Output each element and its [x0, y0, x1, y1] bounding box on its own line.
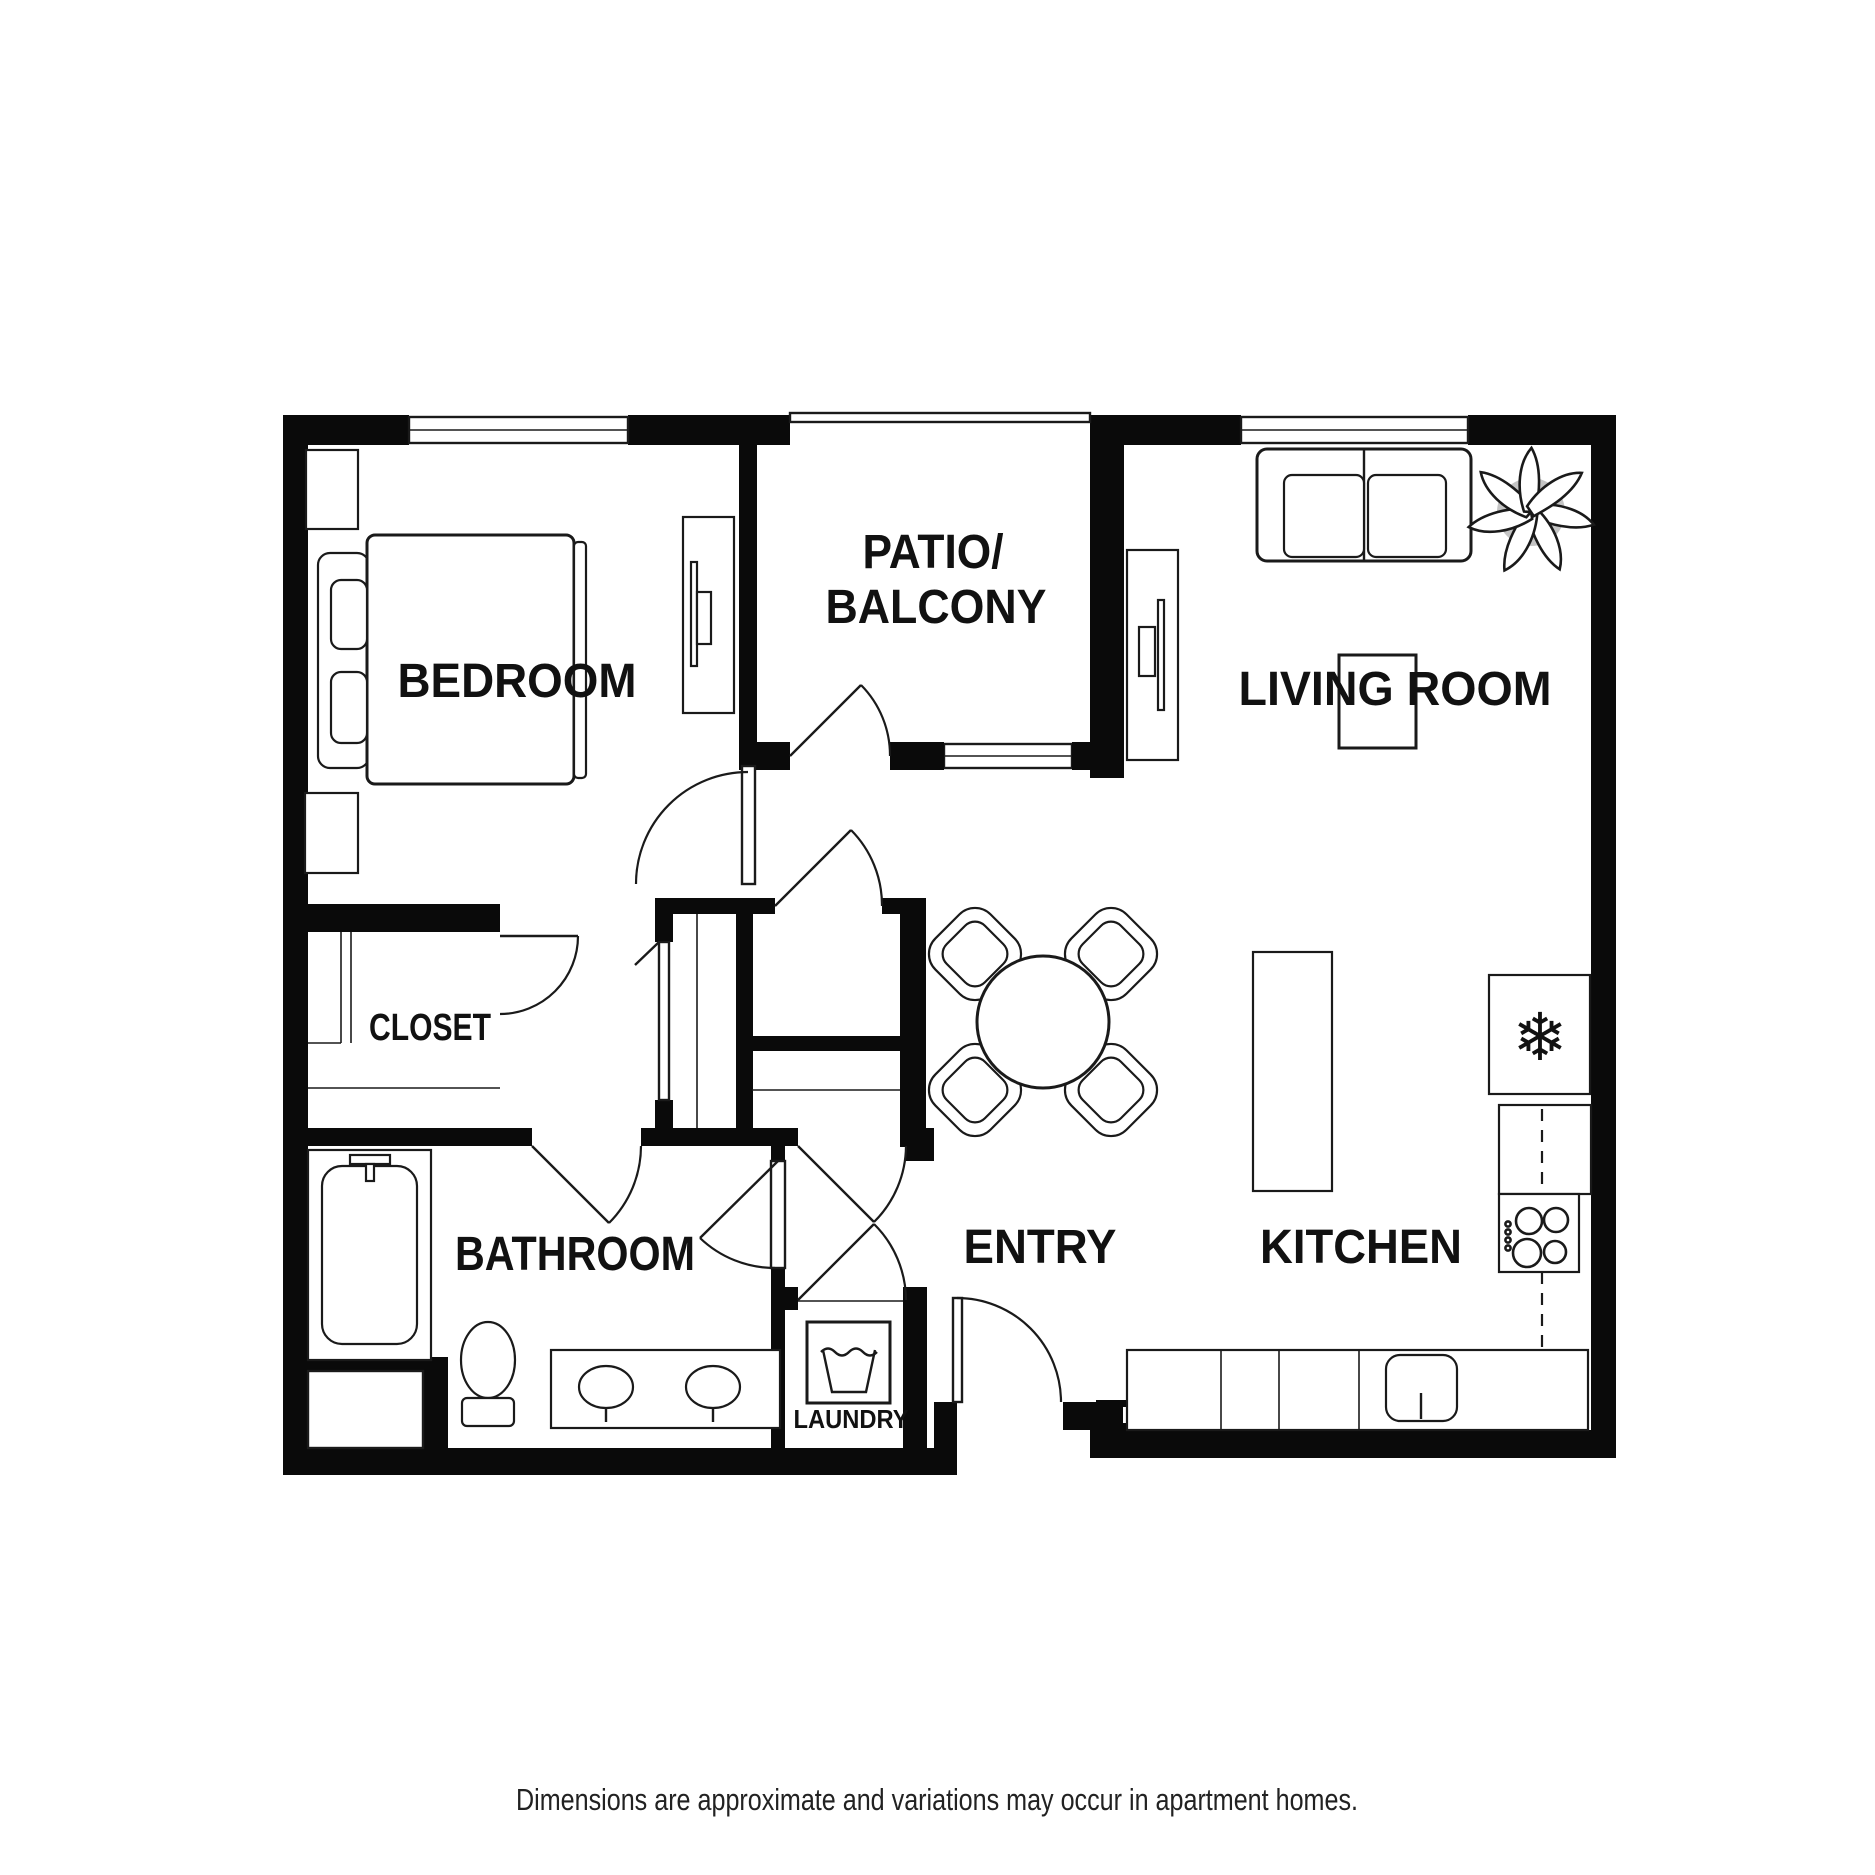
living-room-label: LIVING ROOM — [1239, 663, 1552, 716]
hall-bath-door-swing — [609, 1146, 641, 1223]
toilet-bowl — [461, 1322, 515, 1398]
sofa-cushion-left — [1284, 475, 1364, 557]
hall-bath-door-leaf — [532, 1146, 609, 1223]
plant-icon — [1467, 447, 1596, 575]
kitchen-island — [1253, 952, 1332, 1191]
bathroom-door-leaf — [700, 1161, 778, 1238]
laundry-door-leaf — [798, 1224, 874, 1300]
wall-top-bedroom-left — [283, 415, 409, 445]
wall-bottom-left-block — [283, 1448, 934, 1475]
floor-plan-page: ❄ B — [0, 0, 1875, 1875]
front-door-leaf — [953, 1298, 962, 1402]
laundry-fixtures — [807, 1322, 890, 1403]
closet-label: CLOSET — [369, 1007, 491, 1049]
bathroom-door-swing — [700, 1238, 775, 1268]
wall-storage-left — [736, 898, 753, 1143]
kitchen-counter-right — [1499, 1105, 1591, 1194]
wall-bath-top-b — [641, 1128, 798, 1146]
pillow-left — [331, 580, 367, 649]
nightstand-top — [306, 450, 358, 529]
wall-bottom-door-left-jamb — [934, 1402, 957, 1475]
fridge-snowflake-icon: ❄ — [1512, 999, 1567, 1076]
bedroom-door-leaf — [742, 766, 755, 884]
wall-patio-bottom-b — [890, 742, 944, 770]
dining-table — [977, 956, 1109, 1088]
wall-patio-bottom-c — [1072, 742, 1124, 770]
vestibule-door-leaf — [798, 1146, 874, 1222]
wall-storage-right — [900, 898, 926, 1147]
toilet-tank — [462, 1398, 514, 1426]
nightstand-bottom — [305, 793, 358, 873]
wall-left — [283, 415, 308, 1475]
wall-laundry-top-stub — [771, 1287, 798, 1310]
sofa-cushion-right — [1368, 475, 1446, 557]
laundry-door-swing — [874, 1224, 906, 1300]
vestibule-door-swing — [874, 1146, 906, 1222]
wall-top-bedroom-right — [628, 415, 790, 445]
kitchen-fixtures: ❄ — [1127, 952, 1591, 1430]
wall-patio-right — [1090, 440, 1124, 778]
hall-closet-door-leaf — [659, 942, 669, 1100]
bathroom-label: BATHROOM — [455, 1228, 695, 1281]
tub-faucet-stem — [366, 1164, 374, 1181]
wall-storage-middle — [752, 1036, 900, 1051]
pillow-right — [331, 672, 367, 743]
patio-label-line1: PATIO/ — [863, 526, 1004, 579]
living-tv-icon — [1158, 600, 1164, 710]
laundry-label: LAUNDRY — [794, 1404, 909, 1434]
bedroom-tv-mount-icon — [697, 592, 711, 644]
disclaimer-text: Dimensions are approximate and variation… — [516, 1782, 1358, 1817]
vanity-sink-left — [579, 1366, 633, 1408]
entry-label: ENTRY — [964, 1221, 1117, 1274]
bath-niche — [308, 1371, 423, 1448]
closet-door-swing — [500, 936, 578, 1014]
wall-right — [1591, 415, 1616, 1458]
bathroom-doorway — [771, 1161, 785, 1268]
hall-closet-door-tick — [635, 942, 659, 965]
dining-set — [920, 899, 1166, 1145]
floor-plan-drawing: ❄ B — [0, 0, 1875, 1875]
living-tv-mount-icon — [1139, 627, 1155, 676]
bathroom-fixtures — [308, 1150, 780, 1448]
storage-door-leaf — [775, 830, 851, 906]
kitchen-counter-bottom — [1127, 1350, 1588, 1430]
wall-entry-post — [906, 1128, 934, 1161]
wall-patio-left — [739, 440, 757, 764]
vanity-sink-right — [686, 1366, 740, 1408]
bedroom-door-swing — [636, 772, 748, 884]
wall-niche-right — [423, 1371, 448, 1449]
wall-bath-top-a — [283, 1128, 532, 1146]
wall-storage-top-b — [882, 898, 900, 914]
patio-label-line2: BALCONY — [826, 581, 1047, 634]
wall-storage-top-a — [753, 898, 775, 914]
patio-door-leaf — [790, 685, 861, 756]
wall-hall-closet-post-top — [655, 898, 673, 942]
patio-railing — [790, 413, 1090, 422]
bathtub — [322, 1166, 417, 1344]
tub-faucet-icon — [350, 1155, 390, 1164]
wall-bottom-kitchen — [1090, 1430, 1616, 1458]
wall-bottom-door-right-jamb — [1063, 1402, 1096, 1430]
wall-closet-top — [283, 904, 500, 932]
storage-door-swing — [851, 830, 882, 906]
bedroom-label: BEDROOM — [398, 655, 637, 708]
patio-door-swing — [861, 685, 890, 756]
kitchen-label: KITCHEN — [1260, 1221, 1462, 1274]
wall-bath-right-stub-top — [771, 1146, 785, 1161]
wall-hall-closet-top — [673, 898, 736, 914]
front-door-swing — [957, 1298, 1061, 1402]
